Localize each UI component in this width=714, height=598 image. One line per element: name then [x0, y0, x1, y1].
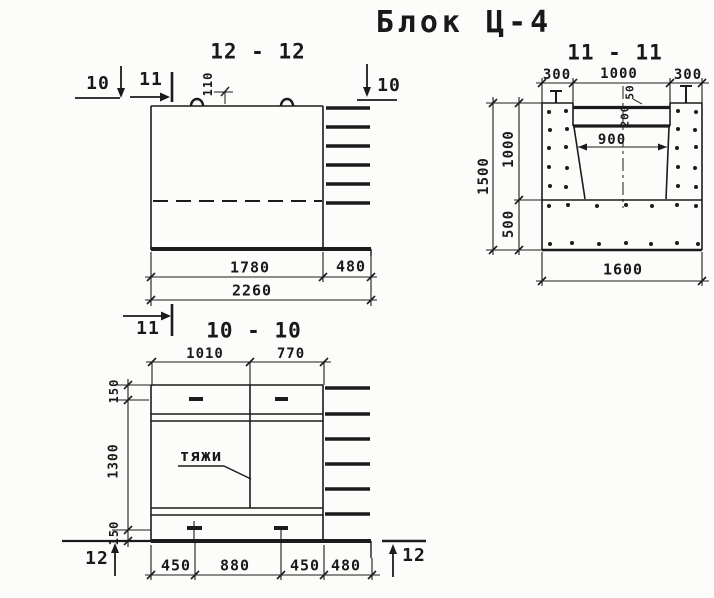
interior-joints-10-10 — [151, 385, 323, 515]
tie-rods-label: тяжи — [180, 448, 223, 464]
dim-label-1600: 1600 — [603, 263, 643, 278]
top-dims-10-10 — [146, 358, 331, 385]
section-11-11-linework — [486, 78, 709, 286]
ledge-hatch-lines-10-10 — [325, 388, 370, 514]
dim-label-1500: 1500 — [477, 157, 491, 195]
ledge-hatch-lines-12-12 — [326, 108, 370, 203]
rebar-tees — [550, 86, 692, 103]
block-outline-10-10 — [151, 385, 371, 558]
dim-label-1010: 1010 — [186, 347, 224, 361]
dim-label-200: 200 — [620, 105, 631, 128]
dim-label-50: 50 — [625, 84, 636, 99]
lifting-loops — [191, 99, 293, 106]
section-title-12-12: 12 - 12 — [210, 42, 306, 63]
marker-label-10-right: 10 — [377, 77, 401, 95]
dim-label-770: 770 — [277, 347, 305, 361]
dim-label-1780: 1780 — [230, 261, 270, 276]
dim-label-300-right: 300 — [674, 68, 702, 82]
dim-label-450-left: 450 — [161, 559, 191, 574]
dim-label-150-bottom: 150 — [108, 521, 120, 546]
dim-label-900: 900 — [598, 133, 626, 147]
blueprint-canvas: Блок Ц-4 12 - 12 11 - 11 10 - 10 10 11 1… — [0, 0, 714, 598]
dim-label-1300: 1300 — [108, 443, 121, 478]
dim-label-500: 500 — [502, 210, 516, 238]
dim-label-480-bottom: 480 — [331, 559, 361, 574]
dim-label-2260: 2260 — [232, 284, 272, 299]
dim-label-110: 110 — [202, 72, 214, 97]
dim-label-300-left: 300 — [543, 68, 571, 82]
section-title-10-10: 10 - 10 — [206, 321, 302, 342]
marker-label-11-bottom: 11 — [136, 320, 160, 338]
marker-label-12-right: 12 — [402, 547, 426, 565]
marker-label-11-top: 11 — [139, 71, 163, 89]
dim-label-480-top: 480 — [336, 260, 366, 275]
marker-label-12-left: 12 — [85, 550, 109, 568]
dim-label-1000-top: 1000 — [600, 67, 638, 81]
dim-110-linework — [214, 87, 233, 104]
dim-label-450-right: 450 — [290, 559, 320, 574]
dim-label-1000-left: 1000 — [502, 130, 516, 168]
cut-marker-12-left — [111, 543, 119, 576]
dim-label-150-top: 150 — [108, 379, 120, 404]
marker-label-10-left: 10 — [86, 75, 110, 93]
tie-label-leader — [178, 466, 251, 479]
drawing-title: Блок Ц-4 — [376, 8, 553, 38]
dim-label-880: 880 — [220, 559, 250, 574]
dim-50-leader — [633, 99, 642, 104]
section-title-11-11: 11 - 11 — [567, 43, 663, 64]
